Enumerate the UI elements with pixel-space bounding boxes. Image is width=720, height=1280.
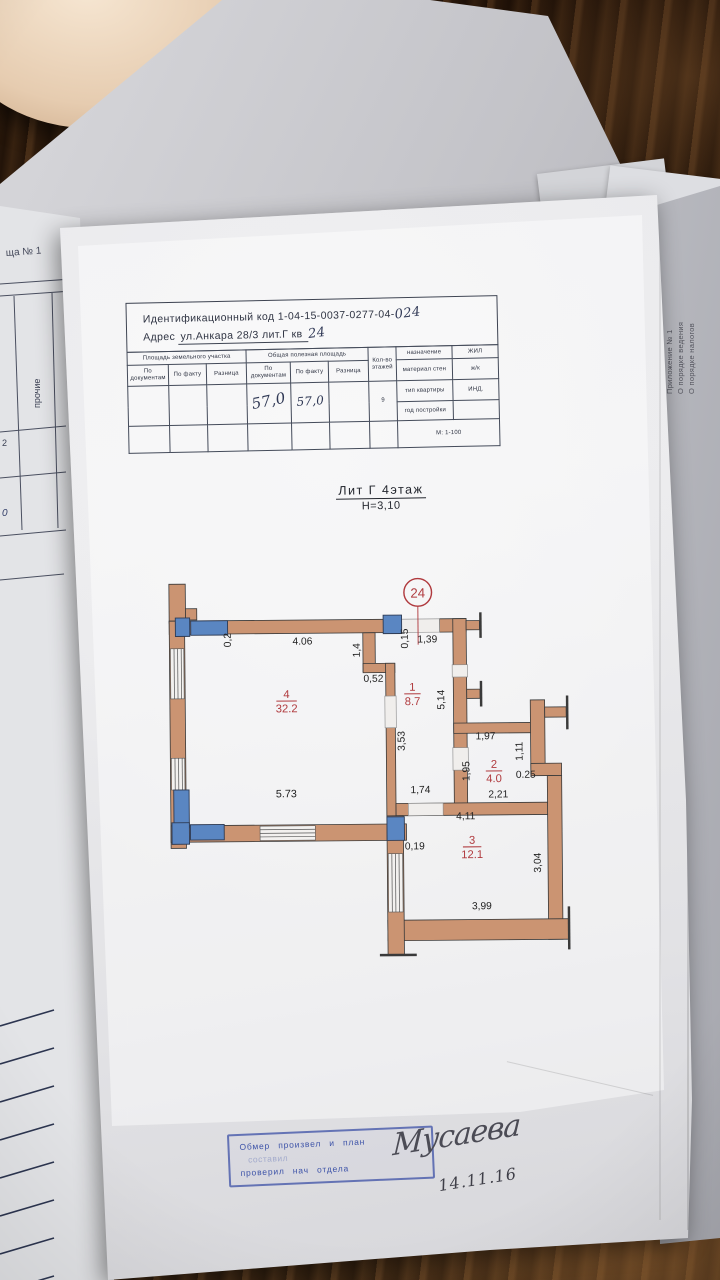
cell-total-doc: 57,0	[247, 383, 292, 424]
dimension-label: 1,97	[476, 731, 496, 742]
handwritten-area-fact: 57,0	[296, 397, 324, 406]
wall-stub	[466, 621, 479, 630]
cell-total-diff	[329, 381, 370, 422]
window-block	[387, 817, 405, 841]
row-year-label: год постройки	[397, 401, 453, 421]
address-value: ул.Анкара 28/3 лит.Г кв	[178, 328, 308, 345]
handwritten-signature: Мусаева	[392, 1108, 521, 1164]
cell-empty	[330, 421, 371, 449]
wall-segment	[386, 663, 397, 827]
window-block	[174, 790, 190, 828]
identification-box: Идентификационный код 1-04-15-0037-0277-…	[125, 295, 498, 353]
dimension-label: 0,52	[363, 674, 383, 685]
room-number: 3	[469, 835, 475, 847]
paper-crease	[687, 240, 689, 1230]
dimension-label: 3,99	[472, 901, 492, 912]
id-value: 1-04-15-0037-0277-04-	[278, 308, 395, 322]
subcol-doc: По документам	[246, 362, 290, 384]
col-floors: Кол-во этажей	[368, 347, 397, 382]
window-block	[172, 823, 190, 845]
wall-stub	[467, 689, 480, 698]
id-handwritten: 024	[394, 303, 422, 324]
dimension-label: 3,04	[533, 852, 544, 872]
cell-empty	[370, 421, 399, 449]
row-type-label: тип квартиры	[397, 380, 453, 402]
handwritten-area-doc: 57,0	[252, 395, 287, 409]
room-number: 2	[491, 759, 497, 771]
dimension-label: 3,53	[397, 731, 408, 751]
dimension-label: 1,39	[417, 634, 437, 645]
cell-empty	[292, 422, 331, 450]
cell-empty	[208, 424, 249, 452]
cell-empty	[129, 426, 171, 454]
door-opening	[385, 696, 397, 728]
row-material-value: ж/к	[452, 358, 498, 380]
dimension-label: 1,74	[410, 785, 430, 796]
document-header: Идентификационный код 1-04-15-0037-0277-…	[125, 295, 500, 454]
dimension-label: 1,4	[352, 643, 363, 658]
dimension-label: 0,2	[223, 633, 234, 648]
room-area: 32.2	[276, 703, 298, 715]
plan-title: Лит Г 4этаж	[336, 482, 425, 500]
plan-title-block: Лит Г 4этаж Н=3,10	[296, 480, 467, 514]
row-type-value: ИНД.	[453, 379, 499, 401]
dimension-label: 5,14	[436, 689, 447, 709]
dimension-label: 0,19	[405, 841, 425, 852]
address-handwritten: 24	[307, 324, 326, 344]
dimension-label: 4.06	[292, 636, 312, 647]
dimension-label: 1,11	[514, 741, 525, 761]
row-purpose-label: назначение	[396, 346, 452, 360]
id-label: Идентификационный код	[143, 311, 275, 326]
room-area: 8.7	[405, 696, 421, 708]
wall-stub	[545, 707, 567, 717]
dimension-label: 0.25	[516, 770, 536, 781]
room-number: 1	[409, 682, 415, 694]
door-opening	[408, 803, 443, 816]
row-year-value	[453, 400, 499, 420]
subcol-fact: По факту	[290, 361, 328, 383]
cell-land-fact	[169, 385, 208, 426]
room-area: 4.0	[486, 773, 502, 785]
scale-note: М: 1-100	[398, 419, 501, 448]
wall-segment	[547, 775, 563, 939]
cell-land-doc	[128, 386, 170, 427]
row-material-label: материал стен	[396, 359, 452, 381]
door-opening	[452, 665, 467, 677]
paper-crease	[659, 200, 661, 1220]
spec-table: Площадь земельного участка Общая полезна…	[126, 344, 500, 454]
dimension-label: 0,15	[400, 628, 411, 648]
subcol-diff: Разница	[206, 363, 246, 385]
address-label: Адрес	[143, 331, 175, 344]
subcol-fact: По факту	[168, 364, 206, 386]
window-block	[190, 824, 224, 840]
cell-empty	[170, 425, 209, 453]
handwritten-date: 14.11.16	[437, 1164, 518, 1195]
wall-segment	[388, 919, 569, 941]
photo-scene: Приложение № 1 О порядке ведения О поряд…	[0, 0, 720, 1280]
room-number: 4	[283, 689, 289, 701]
cell-total-fact: 57,0	[291, 382, 330, 423]
room-area: 12.1	[461, 849, 483, 861]
wall-segment	[530, 700, 545, 774]
main-document-wrap: Идентификационный код 1-04-15-0037-0277-…	[0, 0, 720, 1280]
dimension-label: 5.73	[276, 788, 297, 800]
window-hatches	[170, 647, 403, 914]
dimension-label: 1,95	[461, 761, 472, 781]
floor-plan: 24 4 32.2 1 8.7 2 4.0 3 12.1	[148, 564, 582, 978]
main-document: Идентификационный код 1-04-15-0037-0277-…	[0, 0, 720, 1280]
cell-land-diff	[207, 384, 248, 425]
cell-floors-value: 9	[369, 381, 398, 422]
unit-number: 24	[410, 585, 425, 600]
cell-empty	[248, 423, 293, 451]
window-block	[175, 618, 189, 637]
wall-segment	[169, 584, 186, 623]
dimension-label: 4,11	[456, 811, 476, 822]
row-purpose-value: ЖИЛ	[452, 345, 498, 359]
subcol-diff: Разница	[328, 360, 368, 382]
dimension-label: 2,21	[488, 789, 508, 800]
subcol-doc: По документам	[127, 365, 168, 387]
